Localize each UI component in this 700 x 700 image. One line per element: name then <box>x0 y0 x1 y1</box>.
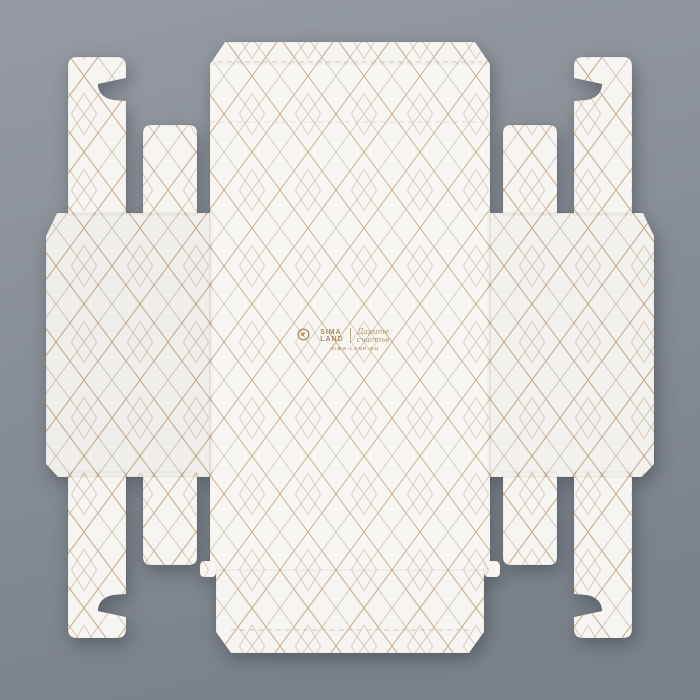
tagline-line2: счастье <box>357 336 390 344</box>
website-text: SIMA-LAND.RU <box>331 347 379 352</box>
logo-divider <box>350 328 351 343</box>
brand-name-line2: LAND <box>320 336 343 343</box>
brand-name-line1: SIMA <box>320 329 343 336</box>
photo-scene: SIMA LAND Дарите счастье SIMA-LAND.RU <box>0 0 700 700</box>
right-panel-shading <box>490 213 654 477</box>
central-highlight <box>210 63 490 570</box>
printed-logo: SIMA LAND Дарите счастье SIMA-LAND.RU <box>297 328 413 352</box>
sima-land-circle-icon <box>297 328 310 341</box>
left-panel-shading <box>46 213 210 477</box>
